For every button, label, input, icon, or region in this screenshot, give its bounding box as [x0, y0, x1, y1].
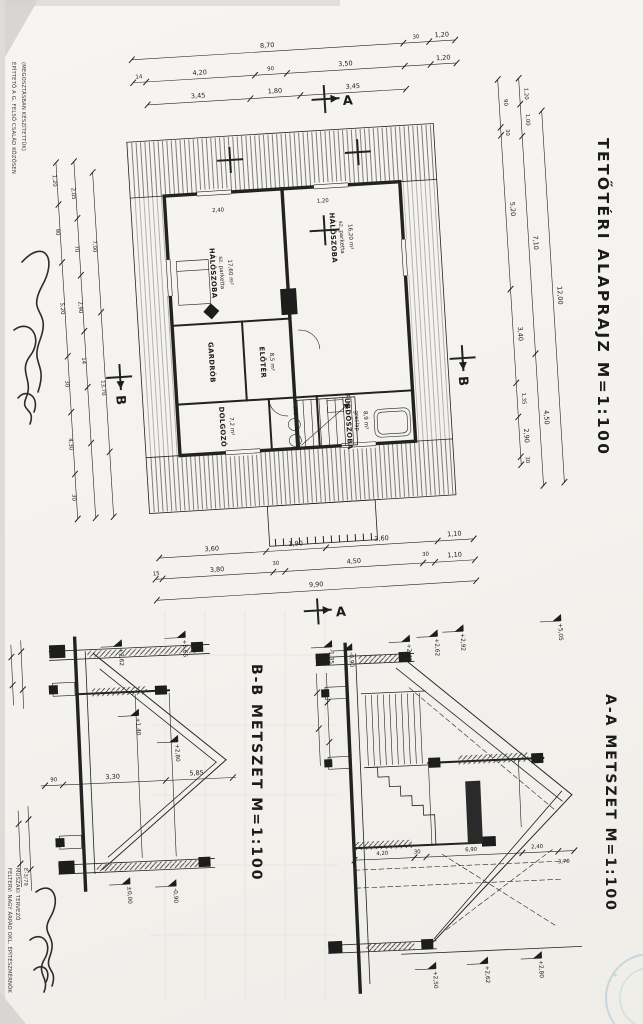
- dim-label: 3,60: [204, 544, 219, 553]
- dim-label: 3,60: [374, 534, 389, 543]
- owner-note: ÉPÍTTETŐ A G. FELSŐ CSALÁD KÖZÖSEN (MEGO…: [10, 62, 28, 174]
- dim-label: 14: [135, 74, 143, 80]
- room-area: 8,9 m²: [362, 411, 370, 430]
- architect-note-line1: FELTERV: NAGY ÁRPÁD OKL. ÉPÍTÉSZMÉRNÖK: [6, 868, 14, 993]
- section-b-drawing: 90 3,30 5,85 +2,62 +5,65 +2,80 +1,40 ±0,…: [8, 629, 242, 911]
- plan-title: TETŐTÉRI ALAPRAJZ M=1:100: [594, 138, 614, 456]
- room-area: 16,20 m²: [346, 224, 355, 250]
- dim-chain-left: 1,20 90 5,20 30 4,30 30 2,05 70 2,90 14 …: [50, 157, 117, 522]
- room-label: DOLGOZÓ: [217, 406, 228, 447]
- architect-note-line3: É-3/79: [22, 868, 30, 886]
- dim-label: 30: [414, 849, 422, 855]
- level-label: +2,80: [173, 744, 180, 762]
- level-label: +2,92: [459, 633, 466, 651]
- section-a-level-flags-top: -1,35 -0,90 +2,40 +2,62 +2,92 +5,05: [310, 614, 564, 669]
- room-floor: greslap: [353, 410, 360, 431]
- level-label: +2,62: [117, 648, 124, 666]
- owner-note-line1: ÉPÍTTETŐ A G. FELSŐ CSALÁD KÖZÖSEN: [10, 62, 18, 174]
- floor-plan: HÁLÓSZOBA sz. parketta 17,60 m² HÁLÓSZOB…: [43, 24, 583, 638]
- level-label: -0,90: [347, 652, 354, 668]
- dim-chain-right: 90 30 5,20 3,40 1,35 2,90 30 1,20 1,00 7…: [495, 73, 576, 490]
- section-marker-label: B: [112, 395, 128, 406]
- dim-label: 13,70: [99, 380, 106, 396]
- dim-label: 30: [272, 561, 280, 567]
- level-label: +1,40: [134, 718, 141, 736]
- dim-label: 1,80: [268, 87, 283, 96]
- dim-label: 90: [267, 66, 275, 72]
- dim-label: 8,70: [260, 41, 275, 50]
- dim-label: 3,80: [210, 565, 225, 574]
- level-label: +2,40: [405, 644, 412, 662]
- section-marker-b-left: B: [106, 364, 132, 405]
- dim-label: 7,00: [91, 240, 98, 253]
- dim-label: 4,20: [192, 68, 207, 77]
- dim-label: 30: [63, 380, 69, 388]
- balcony: [267, 500, 377, 547]
- section-marker-label: A: [335, 605, 346, 621]
- dim-label: 3,45: [191, 91, 206, 100]
- dim-label: 15: [153, 571, 160, 577]
- dim-label: 1,10: [447, 551, 462, 560]
- inner-dim: 2,40: [212, 207, 225, 214]
- dim-label: 1,00: [524, 114, 531, 127]
- level-label: +2,62: [433, 638, 440, 656]
- level-label: +2,50: [431, 971, 438, 989]
- inner-dim: 1,20: [317, 198, 330, 205]
- dim-label: 4,20: [376, 851, 389, 858]
- room-area: 8,5 m²: [268, 352, 276, 371]
- section-marker-label: A: [342, 93, 353, 109]
- section-a-level-flags-bottom: +2,50 +2,62 +2,80: [415, 951, 544, 990]
- dim-label: 1,90: [288, 539, 303, 548]
- dim-label: 2,90: [522, 428, 531, 443]
- level-label: +5,65: [181, 639, 188, 657]
- dim-label: 90: [54, 228, 60, 236]
- room-area: 17,60 m²: [226, 259, 235, 285]
- dim-label: 30: [422, 552, 430, 558]
- dim-label: 1,20: [434, 30, 449, 39]
- dim-label: 1,35: [520, 392, 527, 404]
- dim-label: 3,40: [516, 326, 525, 341]
- architect-note-line2: MŰSZAKI TERVEZŐ: [14, 868, 21, 920]
- dim-label: 2,90: [76, 301, 83, 314]
- dim-label: 90: [502, 99, 508, 107]
- level-label: ±0,00: [126, 886, 133, 904]
- dim-label: 5,85: [189, 769, 204, 778]
- architect-note: FELTERV: NAGY ÁRPÁD OKL. ÉPÍTÉSZMÉRNÖK M…: [6, 868, 30, 993]
- section-marker-label: B: [455, 376, 471, 387]
- level-label: +2,62: [483, 965, 490, 983]
- level-label: +2,80: [537, 960, 544, 978]
- dim-label: 5,20: [508, 202, 517, 217]
- dim-label: 30: [70, 494, 76, 502]
- section-a-stairs: [361, 691, 436, 848]
- dim-label: 6,90: [465, 847, 478, 854]
- room-label: WC: [291, 406, 298, 416]
- bleed-through-lines: [150, 612, 338, 1002]
- section-b-title: B-B METSZET M=1:100: [248, 664, 264, 882]
- dim-label: 3,50: [338, 59, 353, 68]
- dim-label: 90: [50, 777, 58, 783]
- room-area: 7,2 m²: [228, 417, 236, 436]
- dim-label: 2,05: [70, 187, 77, 199]
- dim-label: 5,20: [58, 302, 65, 315]
- dim-label: 30: [504, 129, 510, 137]
- dim-label: 4,50: [542, 410, 551, 425]
- dim-label: 1,10: [447, 530, 462, 539]
- level-label: +5,05: [556, 623, 563, 641]
- architect-signature: [30, 888, 55, 992]
- dim-label: 3,70: [558, 859, 571, 866]
- section-a-title: A-A METSZET M=1:100: [602, 694, 618, 912]
- dim-chain-top: 8,70 30 1,20 14 4,20 90 3,50 1,20 3,45 1…: [128, 30, 461, 109]
- section-marker-b-right: B: [450, 345, 476, 386]
- dim-label: 4,30: [67, 438, 74, 451]
- dim-label: 1,20: [51, 175, 58, 188]
- approval-stamp: [606, 954, 643, 1024]
- owner-signature: [14, 251, 49, 424]
- owner-note-line2: (MEGOSZTÁSBAN KÉSZÍTETTÜK): [20, 62, 28, 151]
- level-label: -1,35: [327, 649, 334, 665]
- drawing-sheet: HÁLÓSZOBA sz. parketta 17,60 m² HÁLÓSZOB…: [0, 0, 643, 1024]
- dim-label: 4,50: [346, 557, 361, 566]
- blueprint-svg: HÁLÓSZOBA sz. parketta 17,60 m² HÁLÓSZOB…: [0, 0, 643, 1024]
- dim-label: 1,20: [522, 88, 529, 101]
- dim-label: 3,45: [345, 82, 360, 91]
- level-label: -0,90: [172, 888, 179, 904]
- dim-label: 2,40: [531, 844, 544, 851]
- dim-label: 30: [524, 456, 530, 464]
- dim-label: 70: [73, 245, 79, 253]
- dim-label: 9,90: [309, 580, 324, 589]
- section-a-drawing: 4,20 30 6,90 2,40 3,70 -1,35 -0,90 +2,40…: [310, 614, 583, 994]
- room-label: ELŐTÉR: [258, 346, 269, 379]
- dim-label: 30: [412, 34, 420, 40]
- dim-label: 3,30: [105, 772, 120, 781]
- dim-label: 12,00: [555, 286, 564, 305]
- dim-label: 7,10: [531, 235, 540, 250]
- room-label: GARDRÓB: [206, 342, 217, 383]
- dim-label: 14: [80, 357, 86, 365]
- dim-label: 1,20: [436, 53, 451, 62]
